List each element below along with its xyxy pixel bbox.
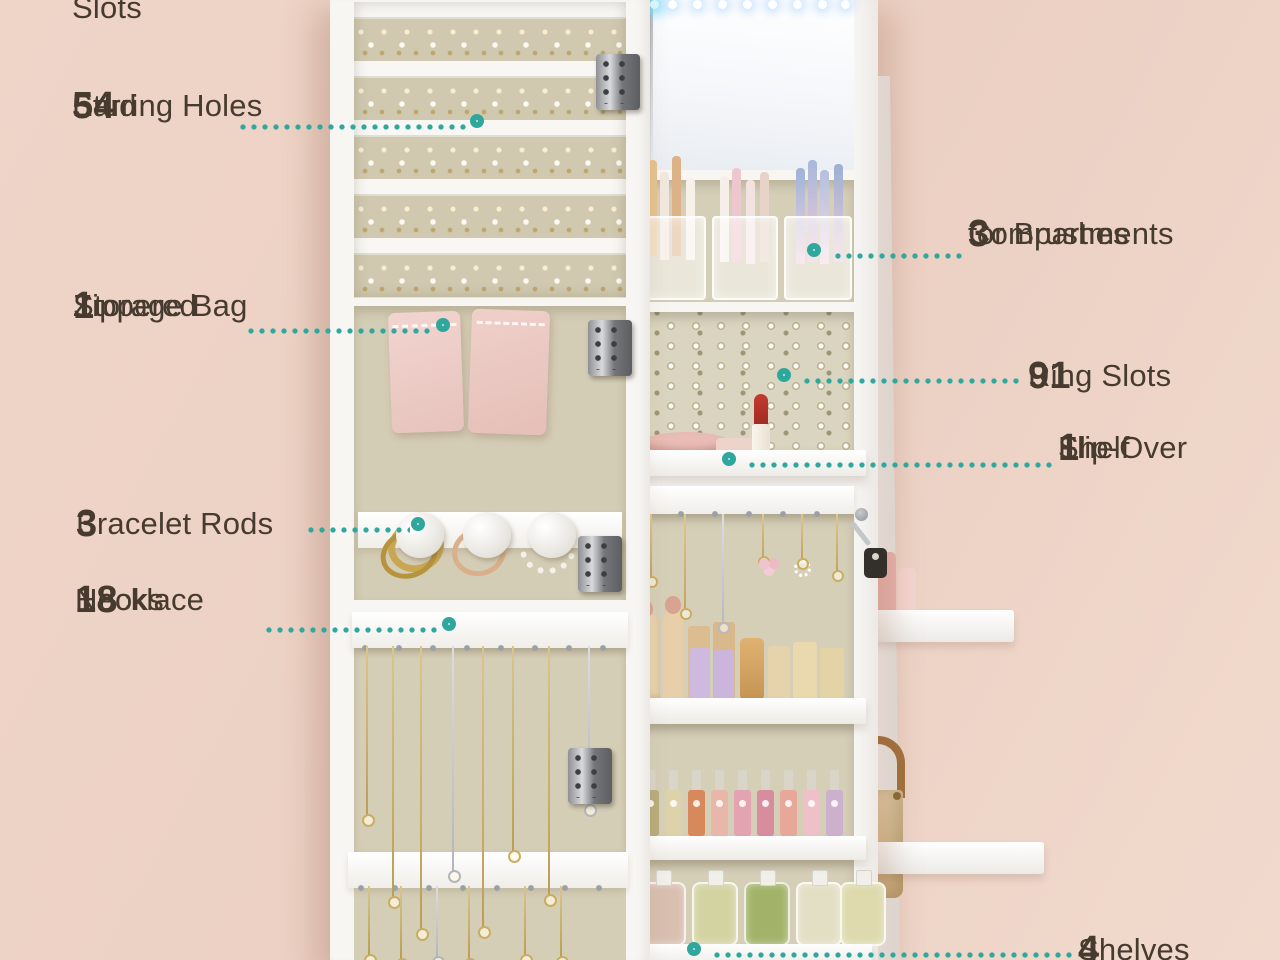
marker-bracelet-rods xyxy=(411,517,425,531)
marker-storage-bag xyxy=(436,318,450,332)
hooks xyxy=(362,645,618,655)
earring-slat-panel xyxy=(354,2,626,298)
necklace xyxy=(452,646,454,872)
door-hinge xyxy=(588,320,632,376)
necklace xyxy=(512,646,514,852)
marker-shelves xyxy=(687,942,701,956)
zippered-storage-bag xyxy=(468,309,550,436)
leader-line-storage-bag xyxy=(248,328,435,334)
necklace xyxy=(392,646,394,898)
bracelet-rod xyxy=(463,512,511,558)
callout-text: Bracelet Rods xyxy=(76,504,273,544)
callout-text: Shelves xyxy=(1078,930,1190,960)
callout-text: Slots xyxy=(72,0,142,28)
necklace xyxy=(468,886,470,960)
necklace xyxy=(524,886,526,956)
necklace xyxy=(482,646,484,928)
door-hinge xyxy=(578,536,622,592)
marker-brush-compartments xyxy=(807,243,821,257)
necklace xyxy=(400,886,402,960)
leader-line-brush-compartments xyxy=(835,253,963,259)
callout-text: Ring Slots xyxy=(1028,356,1171,396)
leader-line-stud-earring xyxy=(240,124,469,130)
marker-stud-earring xyxy=(470,114,484,128)
marker-flip-shelf xyxy=(722,452,736,466)
leader-line-bracelet-rods xyxy=(308,527,410,533)
leader-line-shelves xyxy=(714,952,1076,958)
necklace xyxy=(436,886,438,958)
leader-line-flip-shelf xyxy=(749,462,1053,468)
necklace-hook-rail-lower xyxy=(348,852,628,888)
door-interior xyxy=(0,0,1280,960)
product-annotation-image: Slots 54Stud Earring Holes 1Zippered Sto… xyxy=(0,0,1280,960)
hooks xyxy=(358,885,618,895)
door-hinge xyxy=(568,748,612,804)
bracelet-rod xyxy=(528,512,576,558)
necklace xyxy=(368,886,370,956)
callout-text-line2: Earring Holes xyxy=(72,86,262,126)
door-hinge xyxy=(596,54,640,110)
necklace xyxy=(560,886,562,958)
necklace xyxy=(366,646,368,816)
necklace xyxy=(548,646,550,896)
callout-text-line2: Storage Bag xyxy=(73,286,248,326)
marker-necklace-hooks xyxy=(442,617,456,631)
marker-ring-slots xyxy=(777,368,791,382)
leader-line-necklace-hooks xyxy=(266,627,441,633)
leader-line-ring-slots xyxy=(804,378,1022,384)
necklace xyxy=(420,646,422,930)
callout-text-line2: Hooks xyxy=(75,580,164,620)
callout-text-line2: Shelf xyxy=(1058,428,1130,468)
callout-text-line2: for Brushes xyxy=(968,214,1129,254)
